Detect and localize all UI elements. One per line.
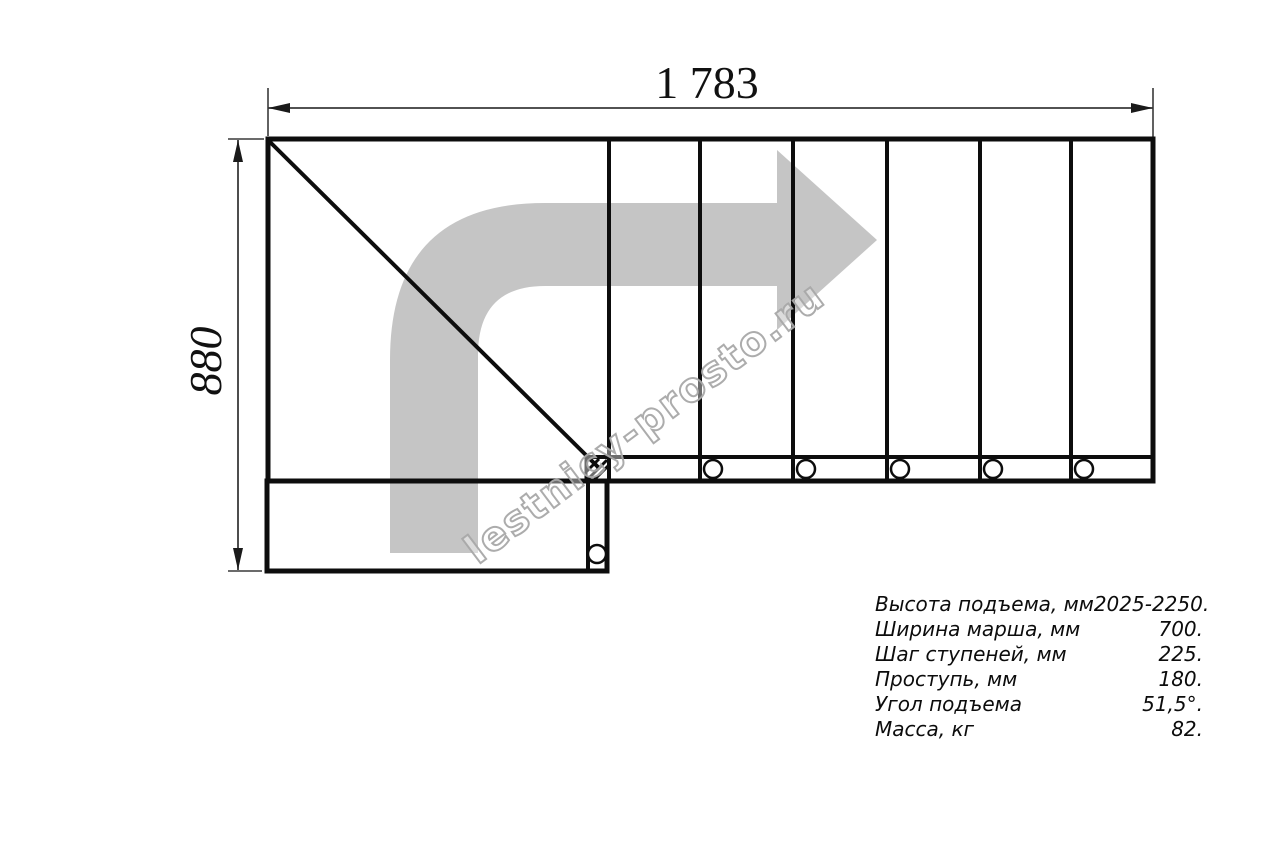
spec-value: 51,5°. [1142, 692, 1203, 717]
left-dimension-line [233, 140, 243, 570]
dimension-extension-lines [228, 88, 1153, 571]
stair-drawing-page: 1 783 880 lestnicy-prosto.ru Высота подъ… [0, 0, 1280, 853]
spec-label: Масса, кг [875, 717, 974, 742]
spec-row-tread: Проступь, мм 180. [875, 667, 1203, 692]
spec-table: Высота подъема, мм 2025-2250. Ширина мар… [875, 592, 1203, 742]
spec-row-mass: Масса, кг 82. [875, 717, 1203, 742]
left-dimension-label: 880 [183, 251, 229, 471]
spec-row-height: Высота подъема, мм 2025-2250. [875, 592, 1203, 617]
spec-label: Шаг ступеней, мм [875, 642, 1067, 667]
spec-row-angle: Угол подъема 51,5°. [875, 692, 1203, 717]
spec-label: Проступь, мм [875, 667, 1017, 692]
spec-value: 2025-2250. [1094, 592, 1209, 617]
top-dimension-label: 1 783 [597, 60, 817, 106]
spec-value: 82. [1171, 717, 1203, 742]
spec-label: Высота подъема, мм [875, 592, 1094, 617]
spec-value: 225. [1158, 642, 1203, 667]
spec-row-step: Шаг ступеней, мм 225. [875, 642, 1203, 667]
spec-label: Ширина марша, мм [875, 617, 1080, 642]
direction-arrow-icon [390, 150, 877, 553]
spec-value: 180. [1158, 667, 1203, 692]
spec-row-width: Ширина марша, мм 700. [875, 617, 1203, 642]
baluster-circles [588, 460, 1093, 563]
spec-value: 700. [1158, 617, 1203, 642]
spec-label: Угол подъема [875, 692, 1022, 717]
